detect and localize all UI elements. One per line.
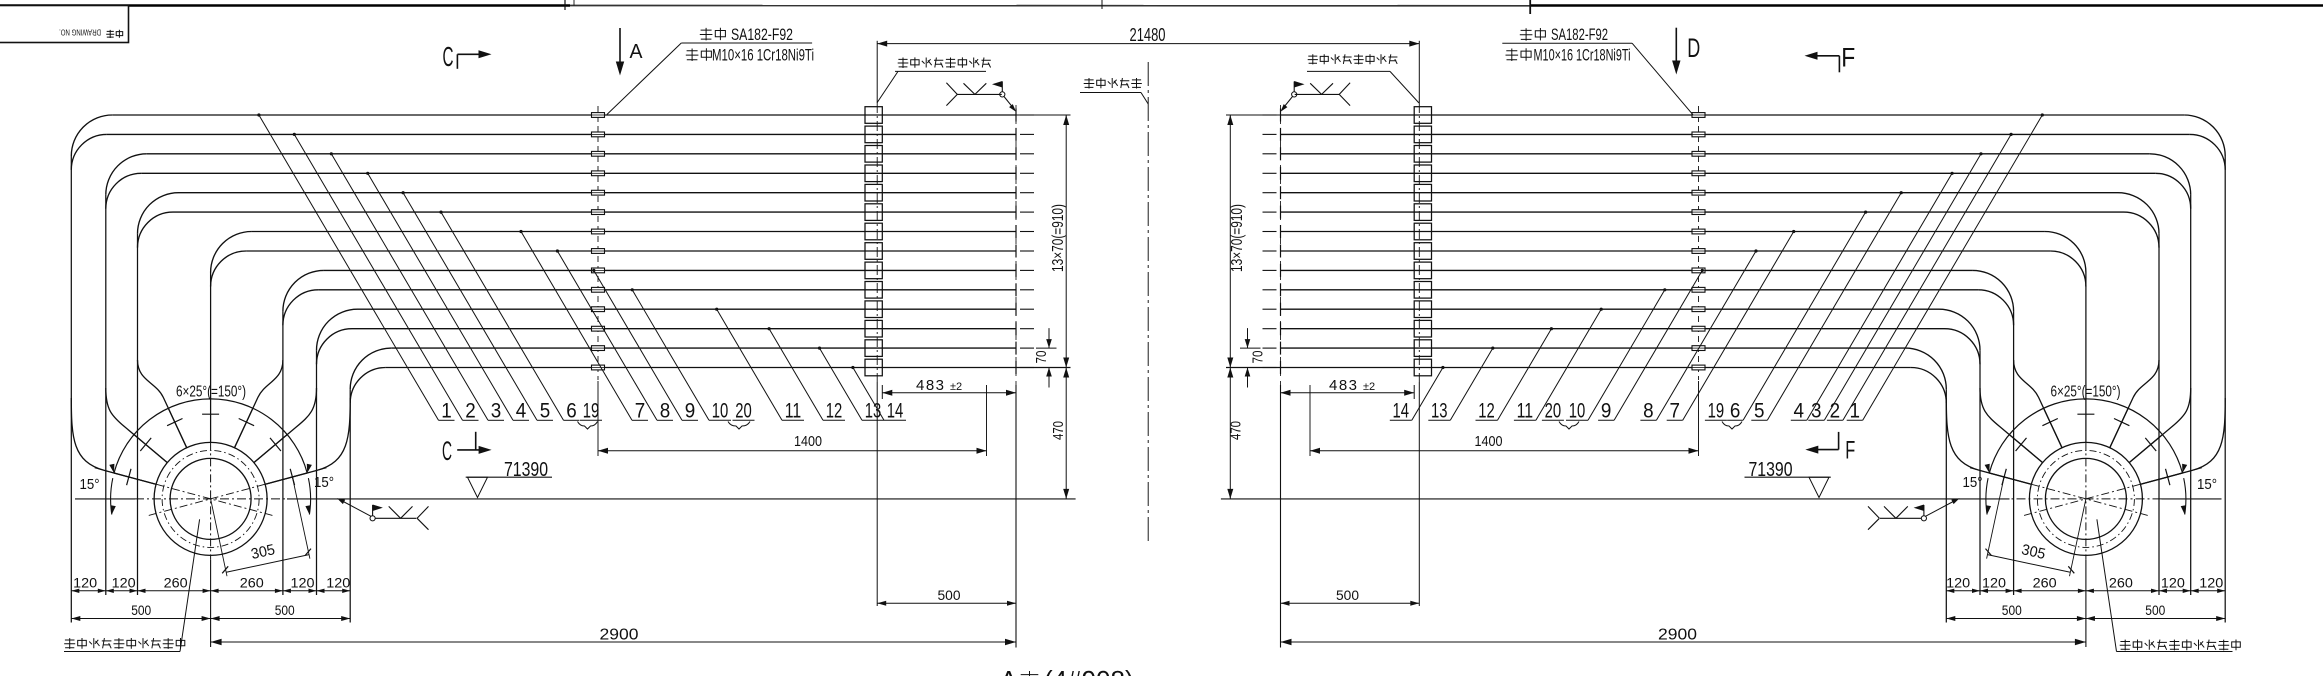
svg-text:14: 14: [1393, 399, 1410, 423]
svg-text:120: 120: [73, 575, 97, 591]
svg-text:71390: 71390: [504, 459, 548, 481]
svg-text:500: 500: [938, 587, 961, 603]
svg-text:11: 11: [1517, 399, 1534, 423]
svg-text:120: 120: [291, 575, 315, 591]
svg-text:10: 10: [1569, 399, 1586, 423]
svg-text:260: 260: [164, 575, 188, 591]
svg-text:8: 8: [660, 399, 671, 423]
svg-text:70: 70: [1034, 351, 1050, 364]
svg-text:15°: 15°: [314, 474, 334, 491]
svg-text:4: 4: [1794, 399, 1805, 423]
svg-text:120: 120: [2161, 575, 2185, 591]
svg-text:15°: 15°: [80, 476, 100, 493]
svg-text:120: 120: [1946, 575, 1970, 591]
svg-text:3: 3: [1811, 399, 1822, 423]
svg-text:2: 2: [465, 399, 476, 423]
svg-text:15°: 15°: [1963, 474, 1983, 491]
svg-text:5: 5: [1754, 399, 1765, 423]
svg-text:6: 6: [1730, 399, 1741, 423]
svg-text:F: F: [1845, 437, 1855, 465]
svg-text:120: 120: [2199, 575, 2223, 591]
svg-text:1: 1: [441, 399, 452, 423]
svg-text:F: F: [1841, 43, 1855, 73]
svg-text:10: 10: [712, 399, 729, 423]
svg-text:5: 5: [540, 399, 551, 423]
svg-text:6×25°(=150°): 6×25°(=150°): [2051, 384, 2121, 401]
svg-text:D: D: [1687, 33, 1700, 63]
svg-text:70: 70: [1251, 351, 1267, 364]
svg-text:120: 120: [112, 575, 136, 591]
svg-text:SA182-F92: SA182-F92: [1551, 25, 1608, 44]
svg-text:C: C: [443, 41, 454, 72]
svg-text:500: 500: [2145, 602, 2165, 618]
svg-text:470: 470: [1228, 421, 1245, 440]
svg-text:120: 120: [1982, 575, 2006, 591]
svg-text:SA182-F92: SA182-F92: [731, 25, 793, 44]
svg-text:±2: ±2: [950, 381, 962, 393]
svg-text:2900: 2900: [1658, 627, 1697, 644]
svg-text:1400: 1400: [794, 433, 822, 450]
svg-text:120: 120: [326, 575, 350, 591]
svg-text:15°: 15°: [2197, 476, 2217, 493]
svg-text:1400: 1400: [1475, 433, 1503, 450]
svg-text:20: 20: [1545, 399, 1562, 423]
svg-text:7: 7: [635, 399, 646, 423]
svg-text:8: 8: [1643, 399, 1654, 423]
svg-text:260: 260: [2109, 575, 2133, 591]
svg-text:483: 483: [916, 377, 946, 394]
svg-text:4: 4: [516, 399, 527, 423]
svg-text:12: 12: [826, 399, 843, 423]
svg-text:6×25°(=150°): 6×25°(=150°): [176, 384, 246, 401]
svg-text:9: 9: [1601, 399, 1612, 423]
svg-text:±2: ±2: [1363, 381, 1375, 393]
svg-text:20: 20: [735, 399, 752, 423]
svg-text:19: 19: [583, 399, 600, 423]
svg-text:13×70(=910): 13×70(=910): [1050, 204, 1067, 272]
svg-text:13: 13: [865, 399, 882, 423]
svg-text:260: 260: [2033, 575, 2057, 591]
svg-text:19: 19: [1708, 399, 1725, 423]
svg-text:2900: 2900: [600, 627, 639, 644]
svg-text:9: 9: [685, 399, 696, 423]
svg-text:M10×16 1Cr18Ni9Ti: M10×16 1Cr18Ni9Ti: [1534, 46, 1631, 65]
svg-text:12: 12: [1478, 399, 1495, 423]
svg-text:1: 1: [1849, 399, 1860, 423]
svg-text:260: 260: [240, 575, 264, 591]
svg-text:500: 500: [2002, 602, 2022, 618]
svg-text:M10×16 1Cr18Ni9Ti: M10×16 1Cr18Ni9Ti: [712, 46, 814, 65]
svg-text:(4#908): (4#908): [1044, 665, 1134, 676]
svg-text:6: 6: [566, 399, 577, 423]
svg-text:A: A: [1000, 665, 1018, 676]
svg-text:21480: 21480: [1130, 25, 1166, 45]
svg-text:A: A: [630, 41, 644, 63]
svg-text:7: 7: [1669, 399, 1680, 423]
svg-text:3: 3: [491, 399, 502, 423]
svg-text:470: 470: [1050, 421, 1067, 440]
svg-text:500: 500: [1336, 587, 1359, 603]
svg-text:500: 500: [275, 602, 295, 618]
svg-text:483: 483: [1329, 377, 1359, 394]
svg-text:14: 14: [887, 399, 904, 423]
svg-text:DRAWING NO.: DRAWING NO.: [59, 28, 101, 38]
svg-text:13: 13: [1431, 399, 1448, 423]
svg-text:13×70(=910): 13×70(=910): [1229, 204, 1246, 272]
svg-text:2: 2: [1830, 399, 1841, 423]
svg-text:500: 500: [131, 602, 151, 618]
svg-text:C: C: [442, 436, 452, 466]
svg-text:71390: 71390: [1749, 459, 1793, 481]
svg-text:11: 11: [785, 399, 802, 423]
